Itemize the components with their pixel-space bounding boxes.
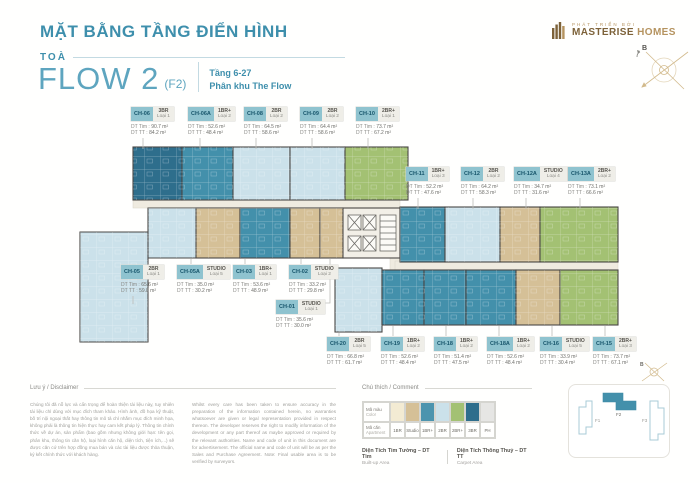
divider bbox=[447, 450, 448, 464]
unit-areas: DT Tim : 64.2 m² DT TT : 58.3 m² bbox=[461, 184, 519, 197]
unit-type: 1BR+Loại 2 bbox=[214, 107, 235, 121]
unit-type: 3BRLoại 1 bbox=[153, 107, 174, 121]
unit-type: 2BRLoại 5 bbox=[349, 337, 370, 351]
disclaimer-section: Lưu ý / Disclaimer Chúng tôi đã nỗ lực v… bbox=[30, 385, 336, 465]
unit-chip: CH-12A STUDIOLoại 4 bbox=[514, 167, 567, 181]
unit-label-CH-13A: CH-13A 2BR+Loại 2 DT Tim : 73.1 m² DT TT… bbox=[568, 167, 626, 196]
unit-code: CH-18 bbox=[434, 337, 456, 351]
unit-code: CH-19 bbox=[381, 337, 403, 351]
mini-compass-north-label: B bbox=[640, 362, 644, 368]
area-term: Diện Tích Thông Thuỷ – DT TTCarpet Area bbox=[457, 448, 532, 466]
disclaimer-text-en: Whilst every care has been taken to ensu… bbox=[192, 401, 336, 465]
unit-type: STUDIOLoại 5 bbox=[203, 265, 230, 279]
unit-chip: CH-20 2BRLoại 5 bbox=[327, 337, 370, 351]
unit-code: CH-11 bbox=[406, 167, 428, 181]
unit-code: CH-01 bbox=[276, 300, 298, 314]
legend-swatch-1BR+ bbox=[420, 402, 435, 422]
unit-chip: CH-02 STUDIOLoại 2 bbox=[289, 265, 338, 279]
unit-label-CH-12A: CH-12A STUDIOLoại 4 DT Tim : 34.7 m² DT … bbox=[514, 167, 572, 196]
legend-type-1BR+: 1BR+ bbox=[420, 422, 435, 438]
keyplan-label-f2: F2 bbox=[616, 412, 622, 417]
unit-code: CH-03 bbox=[233, 265, 255, 279]
legend-row1-header: Mã màuColor bbox=[363, 402, 390, 422]
unit-code: CH-06A bbox=[188, 107, 214, 121]
unit-areas: DT Tim : 64.4 m² DT TT : 58.6 m² bbox=[300, 124, 358, 137]
unit-areas: DT Tim : 65.6 m² DT TT : 59.8 m² bbox=[121, 282, 179, 295]
unit-areas: DT Tim : 51.4 m² DT TT : 47.5 m² bbox=[434, 354, 492, 367]
unit-areas: DT Tim : 52.6 m² DT TT : 48.4 m² bbox=[188, 124, 246, 137]
disclaimer-heading: Lưu ý / Disclaimer bbox=[30, 385, 78, 391]
unit-areas: DT Tim : 34.7 m² DT TT : 31.6 m² bbox=[514, 184, 572, 197]
unit-label-CH-10: CH-10 2BR+Loại 1 DT Tim : 73.7 m² DT TT … bbox=[356, 107, 414, 136]
unit-code: CH-02 bbox=[289, 265, 311, 279]
unit-chip: CH-13A 2BR+Loại 2 bbox=[568, 167, 615, 181]
keyplan-tower-f1 bbox=[579, 401, 592, 434]
legend-type-1BR: 1BR bbox=[390, 422, 405, 438]
legend-swatch-1BR bbox=[390, 402, 405, 422]
unit-chip: CH-12 2BRLoại 2 bbox=[461, 167, 504, 181]
keyplan-label-f3: F3 bbox=[642, 418, 648, 423]
unit-areas: DT Tim : 33.2 m² DT TT : 29.8 m² bbox=[289, 282, 347, 295]
unit-code: CH-12 bbox=[461, 167, 483, 181]
unit-code: CH-18A bbox=[487, 337, 513, 351]
unit-label-CH-03: CH-03 1BR+Loại 1 DT Tim : 53.6 m² DT TT … bbox=[233, 265, 291, 294]
unit-code: CH-09 bbox=[300, 107, 322, 121]
unit-code: CH-12A bbox=[514, 167, 540, 181]
floor-plan-poster: MẶT BẰNG TẦNG ĐIỂN HÌNH TOÀ FLOW 2 (F2) … bbox=[0, 0, 700, 483]
unit-type: STUDIOLoại 5 bbox=[562, 337, 589, 351]
unit-areas: DT Tim : 64.5 m² DT TT : 58.6 m² bbox=[244, 124, 302, 137]
unit-code: CH-05A bbox=[177, 265, 203, 279]
unit-areas: DT Tim : 73.7 m² DT TT : 67.2 m² bbox=[356, 124, 414, 137]
unit-areas: DT Tim : 53.6 m² DT TT : 48.9 m² bbox=[233, 282, 291, 295]
unit-type: 2BR+Loại 3 bbox=[615, 337, 636, 351]
unit-type: 1BR+Loại 2 bbox=[513, 337, 534, 351]
divider bbox=[84, 388, 336, 389]
unit-type: STUDIOLoại 1 bbox=[298, 300, 325, 314]
unit-chip: CH-09 2BRLoại 2 bbox=[300, 107, 343, 121]
unit-areas: DT Tim : 90.7 m² DT TT : 84.2 m² bbox=[131, 124, 189, 137]
legend-swatch-2BR+ bbox=[450, 402, 465, 422]
unit-type: 2BR+Loại 2 bbox=[594, 167, 615, 181]
legend-heading: Chú thích / Comment bbox=[362, 385, 419, 391]
legend-type-Studio: Studio bbox=[405, 422, 420, 438]
keyplan-tower-f3 bbox=[650, 401, 664, 440]
unit-type: 1BR+Loại 2 bbox=[403, 337, 424, 351]
unit-areas: DT Tim : 52.6 m² DT TT : 48.4 m² bbox=[381, 354, 439, 367]
unit-code: CH-20 bbox=[327, 337, 349, 351]
unit-code: CH-05 bbox=[121, 265, 143, 279]
unit-type: 2BRLoại 1 bbox=[143, 265, 164, 279]
legend-section: Chú thích / Comment Mã màuColor Mã cănAp… bbox=[362, 385, 532, 466]
unit-label-CH-12: CH-12 2BRLoại 2 DT Tim : 64.2 m² DT TT :… bbox=[461, 167, 519, 196]
legend-row2-header: Mã cănApartment bbox=[363, 422, 390, 438]
unit-areas: DT Tim : 73.1 m² DT TT : 66.6 m² bbox=[568, 184, 626, 197]
keyplan-tower-f2-active bbox=[603, 393, 636, 410]
unit-code: CH-15 bbox=[593, 337, 615, 351]
unit-chip: CH-03 1BR+Loại 1 bbox=[233, 265, 276, 279]
unit-chip: CH-18A 1BR+Loại 2 bbox=[487, 337, 534, 351]
legend-swatch-Studio bbox=[405, 402, 420, 422]
unit-type: STUDIOLoại 2 bbox=[311, 265, 338, 279]
unit-areas: DT Tim : 52.6 m² DT TT : 48.4 m² bbox=[487, 354, 545, 367]
unit-areas: DT Tim : 33.9 m² DT TT : 30.4 m² bbox=[540, 354, 598, 367]
unit-label-CH-06: CH-06 3BRLoại 1 DT Tim : 90.7 m² DT TT :… bbox=[131, 107, 189, 136]
unit-areas: DT Tim : 66.8 m² DT TT : 61.7 m² bbox=[327, 354, 385, 367]
unit-type: 1BR+Loại 1 bbox=[255, 265, 276, 279]
legend-type-3BR: 3BR bbox=[465, 422, 480, 438]
unit-type: 2BR+Loại 1 bbox=[378, 107, 399, 121]
unit-chip: CH-01 STUDIOLoại 1 bbox=[276, 300, 325, 314]
legend-type-2BR+: 2BR+ bbox=[450, 422, 465, 438]
unit-label-CH-09: CH-09 2BRLoại 2 DT Tim : 64.4 m² DT TT :… bbox=[300, 107, 358, 136]
unit-chip: CH-16 STUDIOLoại 5 bbox=[540, 337, 589, 351]
unit-areas: DT Tim : 35.6 m² DT TT : 30.0 m² bbox=[276, 317, 334, 330]
legend-swatch-3BR bbox=[465, 402, 480, 422]
unit-chip: CH-10 2BR+Loại 1 bbox=[356, 107, 399, 121]
unit-label-CH-08: CH-08 2BRLoại 2 DT Tim : 64.5 m² DT TT :… bbox=[244, 107, 302, 136]
unit-areas: DT Tim : 35.0 m² DT TT : 30.2 m² bbox=[177, 282, 235, 295]
unit-code: CH-06 bbox=[131, 107, 153, 121]
unit-label-CH-02: CH-02 STUDIOLoại 2 DT Tim : 33.2 m² DT T… bbox=[289, 265, 347, 294]
unit-label-CH-16: CH-16 STUDIOLoại 5 DT Tim : 33.9 m² DT T… bbox=[540, 337, 598, 366]
area-terms: Diện Tích Tim Tường – DT TimBuilt-up Are… bbox=[362, 448, 532, 466]
unit-label-CH-05: CH-05 2BRLoại 1 DT Tim : 65.6 m² DT TT :… bbox=[121, 265, 179, 294]
unit-chip: CH-11 1BR+Loại 3 bbox=[406, 167, 449, 181]
unit-code: CH-16 bbox=[540, 337, 562, 351]
unit-chip: CH-18 1BR+Loại 2 bbox=[434, 337, 477, 351]
unit-areas: DT Tim : 52.2 m² DT TT : 47.6 m² bbox=[406, 184, 464, 197]
unit-chip: CH-05A STUDIOLoại 5 bbox=[177, 265, 230, 279]
legend-swatch-2BR bbox=[435, 402, 450, 422]
mini-compass-icon: B bbox=[634, 360, 674, 384]
unit-label-CH-11: CH-11 1BR+Loại 3 DT Tim : 52.2 m² DT TT … bbox=[406, 167, 464, 196]
unit-type: 2BRLoại 2 bbox=[483, 167, 504, 181]
unit-chip: CH-19 1BR+Loại 2 bbox=[381, 337, 424, 351]
unit-type: 1BR+Loại 2 bbox=[456, 337, 477, 351]
unit-label-CH-19: CH-19 1BR+Loại 2 DT Tim : 52.6 m² DT TT … bbox=[381, 337, 439, 366]
disclaimer-text-vi: Chúng tôi đã nỗ lực và cẩn trọng để hoàn… bbox=[30, 401, 174, 465]
unit-code: CH-10 bbox=[356, 107, 378, 121]
unit-label-CH-05A: CH-05A STUDIOLoại 5 DT Tim : 35.0 m² DT … bbox=[177, 265, 235, 294]
unit-label-CH-06A: CH-06A 1BR+Loại 2 DT Tim : 52.6 m² DT TT… bbox=[188, 107, 246, 136]
unit-type: 1BR+Loại 3 bbox=[428, 167, 449, 181]
unit-label-CH-18A: CH-18A 1BR+Loại 2 DT Tim : 52.6 m² DT TT… bbox=[487, 337, 545, 366]
unit-chip: CH-05 2BRLoại 1 bbox=[121, 265, 164, 279]
unit-chip: CH-08 2BRLoại 2 bbox=[244, 107, 287, 121]
unit-label-CH-01: CH-01 STUDIOLoại 1 DT Tim : 35.6 m² DT T… bbox=[276, 300, 334, 329]
keyplan-label-f1: F1 bbox=[595, 418, 601, 423]
legend-swatch-PH bbox=[480, 402, 495, 422]
unit-type: 2BRLoại 2 bbox=[322, 107, 343, 121]
legend-table: Mã màuColor Mã cănApartment1BRStudio1BR+… bbox=[362, 401, 496, 439]
unit-chip: CH-06 3BRLoại 1 bbox=[131, 107, 174, 121]
unit-type: STUDIOLoại 4 bbox=[540, 167, 567, 181]
unit-code: CH-13A bbox=[568, 167, 594, 181]
unit-code: CH-08 bbox=[244, 107, 266, 121]
legend-type-PH: PH bbox=[480, 422, 495, 438]
divider bbox=[425, 388, 532, 389]
area-term: Diện Tích Tim Tường – DT TimBuilt-up Are… bbox=[362, 448, 438, 466]
unit-label-CH-18: CH-18 1BR+Loại 2 DT Tim : 51.4 m² DT TT … bbox=[434, 337, 492, 366]
keyplan-box: F1 F2 F3 bbox=[568, 384, 670, 458]
unit-type: 2BRLoại 2 bbox=[266, 107, 287, 121]
unit-label-CH-20: CH-20 2BRLoại 5 DT Tim : 66.8 m² DT TT :… bbox=[327, 337, 385, 366]
legend-type-2BR: 2BR bbox=[435, 422, 450, 438]
keyplan-diagram: F1 F2 F3 bbox=[569, 385, 669, 455]
unit-chip: CH-06A 1BR+Loại 2 bbox=[188, 107, 235, 121]
unit-chip: CH-15 2BR+Loại 3 bbox=[593, 337, 636, 351]
